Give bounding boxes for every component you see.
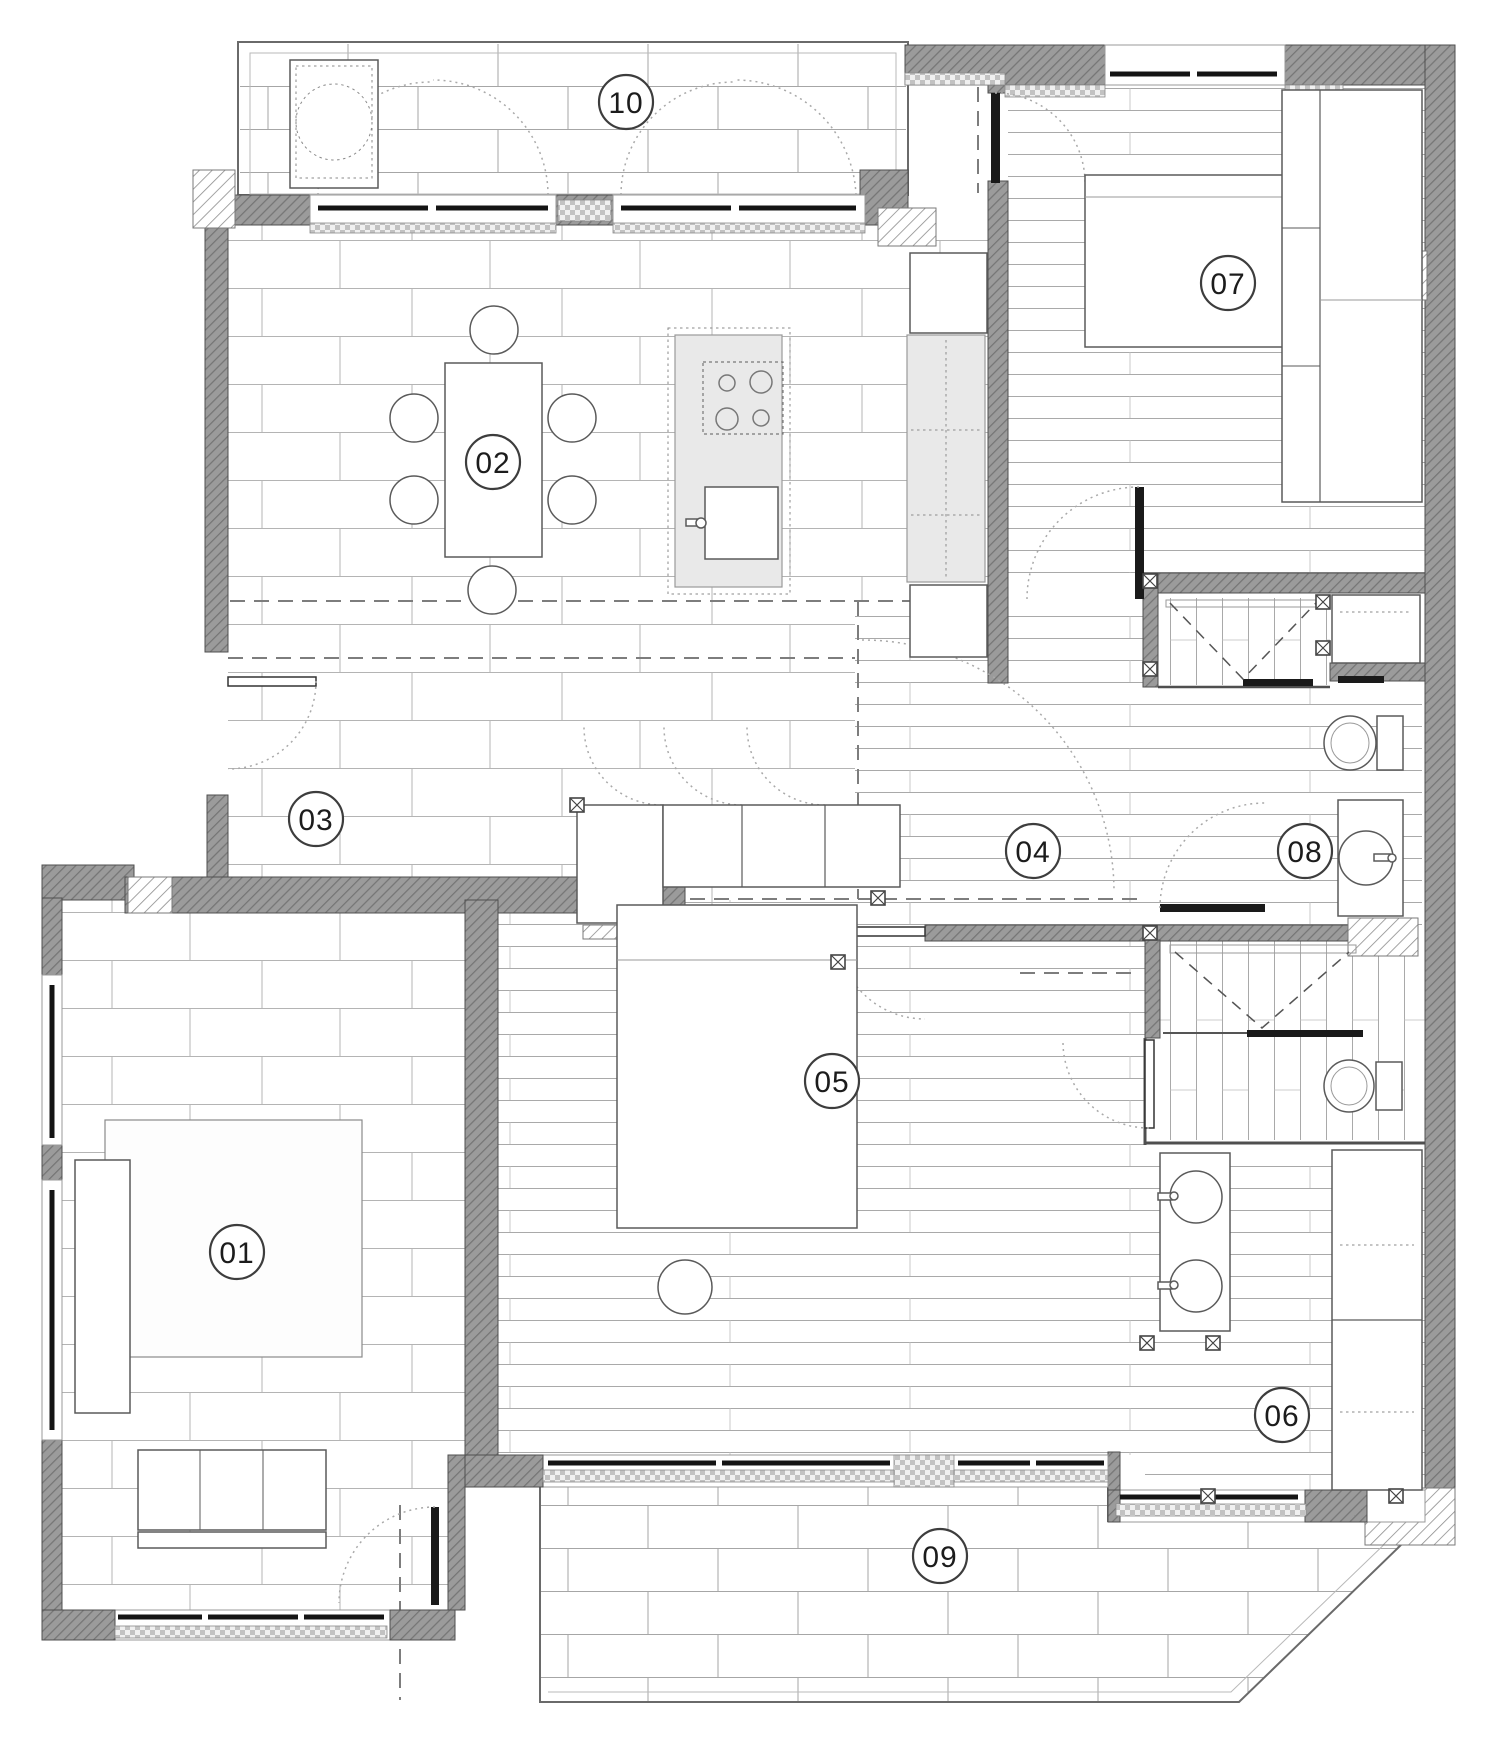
closet-sliding-door xyxy=(1243,679,1313,686)
room-label-04: 04 xyxy=(1006,824,1060,878)
floor-plan-canvas: 01 02 03 04 05 06 07 08 xyxy=(0,0,1500,1738)
dining-chair xyxy=(548,476,596,524)
kitchen-island xyxy=(668,328,790,594)
closet-row xyxy=(663,805,900,887)
dining-chair xyxy=(468,566,516,614)
dining-chair xyxy=(390,476,438,524)
kitchen-dining-02-floor xyxy=(228,222,988,601)
faucet-knob-08 xyxy=(1388,854,1396,862)
room-label-07: 07 xyxy=(1201,256,1255,310)
tv-bench-01 xyxy=(75,1160,130,1413)
room-label-05: 05 xyxy=(805,1054,859,1108)
kitchen-wall-counter xyxy=(907,253,987,657)
living-01-left-windows xyxy=(42,975,62,1440)
dining-chair xyxy=(470,306,518,354)
floor-plan-page: 01 02 03 04 05 06 07 08 xyxy=(0,0,1500,1738)
room-07-number: 07 xyxy=(1210,268,1245,301)
room-label-08: 08 xyxy=(1278,824,1332,878)
kitchen-faucet-knob xyxy=(696,518,706,528)
shower-glass xyxy=(1247,1030,1363,1037)
pier-sill xyxy=(558,200,611,221)
room-05-number: 05 xyxy=(814,1066,849,1099)
bed-07 xyxy=(1085,175,1285,347)
room-09-number: 09 xyxy=(922,1541,957,1574)
dining-chair xyxy=(548,394,596,442)
room-label-10: 10 xyxy=(599,75,653,129)
room-label-02: 02 xyxy=(466,435,520,489)
terrace-10-planter xyxy=(290,60,378,188)
room-04-number: 04 xyxy=(1015,836,1050,869)
room-02-number: 02 xyxy=(475,447,510,480)
room-03-number: 03 xyxy=(298,804,333,837)
room-label-06: 06 xyxy=(1255,1388,1309,1442)
room-label-03: 03 xyxy=(289,792,343,846)
dressing-06-bottom-window xyxy=(1108,1490,1425,1522)
room-08-number: 08 xyxy=(1287,836,1322,869)
room-10-number: 10 xyxy=(608,87,643,120)
room-label-01: 01 xyxy=(210,1225,264,1279)
vanity-08 xyxy=(1338,800,1403,916)
kitchen-top-window-1 xyxy=(310,195,556,233)
toilet-08 xyxy=(1324,716,1403,770)
bedroom-05-bottom-windows xyxy=(465,1455,1108,1487)
living-01-bottom-window xyxy=(42,1610,455,1640)
room-label-09: 09 xyxy=(913,1529,967,1583)
nook-sliding-door xyxy=(1338,676,1384,683)
closet-floor xyxy=(1158,598,1330,685)
double-vanity-06 xyxy=(1158,1153,1230,1331)
sofa-01 xyxy=(138,1450,326,1548)
toilet-ensuite xyxy=(1324,1060,1402,1112)
pouf-05 xyxy=(658,1260,712,1314)
wardrobe-07 xyxy=(1282,90,1422,502)
kitchen-sink xyxy=(705,487,778,559)
wardrobe-06 xyxy=(1332,1150,1422,1490)
kitchen-top-window-2 xyxy=(613,195,865,233)
kitchen-cabinet xyxy=(910,253,987,333)
dining-chair xyxy=(390,394,438,442)
kitchen-cabinet xyxy=(910,585,987,657)
room-01-number: 01 xyxy=(219,1237,254,1270)
room-06-number: 06 xyxy=(1264,1400,1299,1433)
nook-cabinet xyxy=(1332,595,1420,663)
